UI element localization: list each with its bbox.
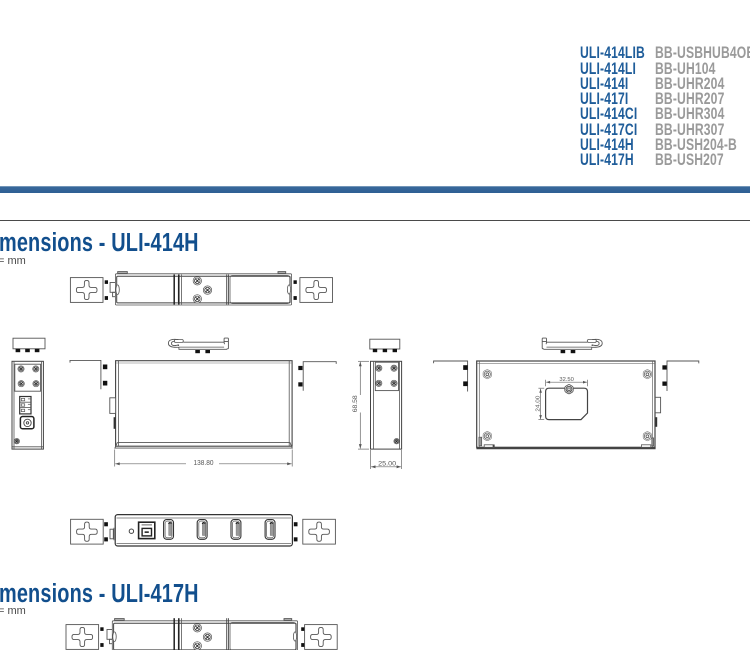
svg-text:138.80: 138.80 [194, 460, 214, 467]
svg-text:25.00: 25.00 [378, 461, 396, 468]
svg-text:68.58: 68.58 [352, 395, 359, 413]
svg-text:32.50: 32.50 [559, 377, 574, 383]
svg-text:24.00: 24.00 [536, 396, 542, 412]
